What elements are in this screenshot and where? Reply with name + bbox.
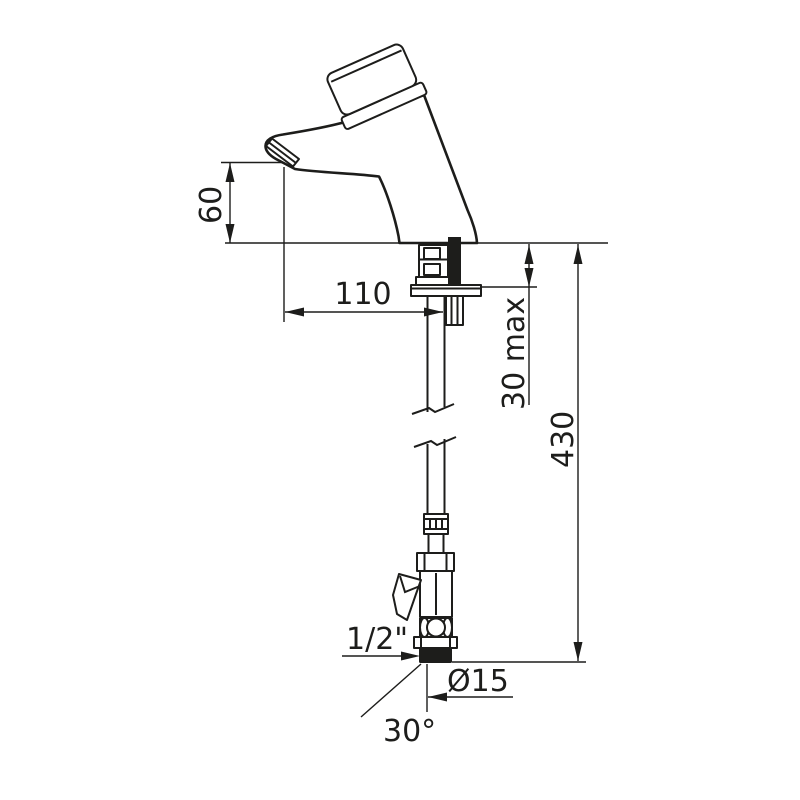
label-inlet-thread: 1/2" [346, 622, 408, 657]
label-spout-height: 60 [194, 186, 229, 224]
stop-valve-lever [393, 574, 421, 620]
stop-valve-body [420, 571, 452, 617]
inlet-thread [419, 648, 452, 663]
leader-valve-angle [361, 664, 421, 717]
label-under-deck-height: 430 [546, 411, 581, 468]
label-spout-reach: 110 [334, 277, 391, 312]
stop-valve-nut [417, 553, 454, 571]
fixing-nut [446, 296, 463, 325]
hose-fitting [424, 514, 448, 534]
dimension-spout-height [221, 163, 288, 244]
label-valve-angle: 30° [383, 714, 436, 749]
dimension-labels: 60 110 30 max 430 1/2" Ø15 30° [194, 186, 581, 749]
drawing-canvas: 60 110 30 max 430 1/2" Ø15 30° [0, 0, 800, 800]
inlet-nut [414, 637, 457, 648]
below-deck-assembly [393, 237, 481, 663]
threaded-shank [416, 245, 451, 285]
label-pipe-diameter: Ø15 [447, 664, 509, 699]
valve-inlet-tube [429, 534, 444, 553]
pipe-break [412, 404, 456, 447]
supply-pipe-lower [428, 439, 445, 514]
tap-body-group [266, 41, 478, 243]
label-deck-thickness: 30 max [497, 297, 532, 410]
union-nut [420, 618, 452, 637]
tap-dimension-drawing: 60 110 30 max 430 1/2" Ø15 30° [0, 0, 800, 800]
fixing-stud [448, 237, 461, 285]
mounting-flange [411, 285, 481, 296]
